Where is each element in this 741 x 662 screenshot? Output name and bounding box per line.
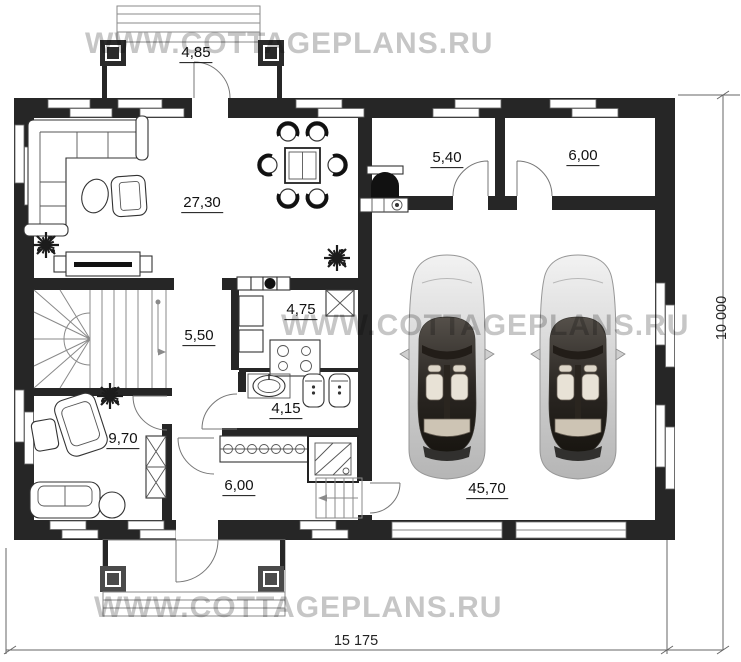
wardrobe-icon: [146, 436, 166, 498]
bathroom-door-icon: [202, 394, 237, 429]
dining-set-icon: [259, 123, 346, 207]
coat-rack-icon: [220, 436, 310, 462]
plant-icon: [324, 245, 350, 271]
room-label-storage: 6,00: [566, 148, 599, 166]
room-label-garage: 45,70: [466, 481, 508, 499]
armchair-icon: [111, 175, 148, 217]
toilet-icon: [303, 374, 324, 407]
watermark-bottom: WWW.COTTAGEPLANS.RU: [94, 593, 502, 623]
car-icon: [531, 255, 625, 479]
storage-door-icon: [517, 161, 552, 196]
ottoman-icon: [31, 418, 60, 452]
shower-icon: [308, 436, 358, 482]
stove-icon: [270, 340, 320, 376]
staircase-icon: [34, 290, 166, 388]
terrace-door-icon: [194, 62, 230, 98]
boiler-icon: [367, 166, 403, 198]
room-label-hall: 5,50: [182, 328, 215, 346]
plant-icon: [97, 383, 123, 409]
dimension-height: 10 000: [714, 296, 730, 340]
utility-sink-icon: [360, 198, 408, 212]
study-door-icon: [133, 396, 167, 430]
garage-access-door-icon: [370, 483, 400, 513]
column-icon: [100, 566, 126, 592]
bidet-icon: [329, 374, 350, 407]
room-label-study: 9,70: [106, 431, 139, 449]
tv-stand-icon: [54, 252, 152, 276]
front-door-icon: [176, 540, 218, 582]
room-label-living: 27,30: [181, 195, 223, 213]
study-furniture: [30, 383, 166, 518]
round-table-icon: [99, 492, 125, 518]
floor-plan-page: WWW.COTTAGEPLANS.RU WWW.COTTAGEPLANS.RU …: [0, 0, 741, 662]
room-label-entry: 6,00: [222, 478, 255, 496]
dimension-width: 15 175: [334, 633, 378, 649]
coffee-table-icon: [78, 176, 111, 215]
sink-icon: [248, 374, 290, 398]
entry-steps-icon: [316, 478, 362, 518]
entry-door-icon: [178, 438, 214, 474]
column-icon: [258, 566, 284, 592]
car-icon: [400, 255, 494, 479]
watermark-top: WWW.COTTAGEPLANS.RU: [85, 29, 493, 59]
room-label-boiler: 5,40: [430, 150, 463, 168]
sofa-icon: [30, 482, 100, 518]
room-label-kitchen: 4,75: [284, 302, 317, 320]
room-label-terrace: 4,85: [179, 45, 212, 63]
watermark-middle: WWW.COTTAGEPLANS.RU: [281, 311, 689, 341]
room-label-bathroom: 4,15: [269, 401, 302, 419]
